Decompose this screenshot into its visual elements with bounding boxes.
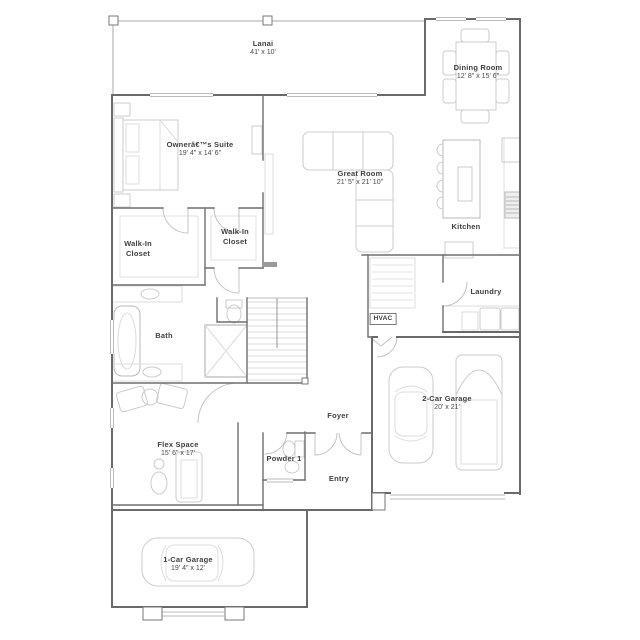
floor-plan-drawing <box>0 0 640 640</box>
floor-plan: Lanai 41' x 10' Dining Room 12' 8" x 15'… <box>0 0 640 640</box>
